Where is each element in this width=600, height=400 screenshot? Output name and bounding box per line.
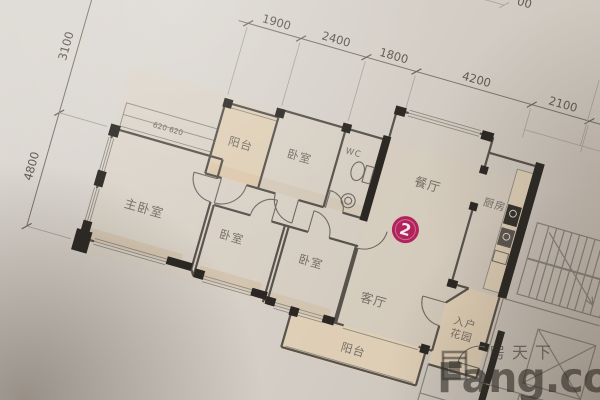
dim-partial-top: 00 <box>516 0 534 11</box>
watermark-en: Fang.com <box>437 354 600 400</box>
dim-left-2: 4800 <box>21 150 43 182</box>
floorplan-photo: 1900 2400 1800 4200 2100 3100 4800 00 62… <box>0 0 600 400</box>
dim-left-1: 3100 <box>55 30 77 62</box>
watermark: 房天下 Fang.com <box>437 343 600 400</box>
dim-top-1: 1900 <box>261 11 293 33</box>
dim-top-5: 2100 <box>547 93 579 115</box>
dim-top-4: 4200 <box>461 69 493 91</box>
dim-top-3: 1800 <box>378 45 410 67</box>
dim-top-2: 2400 <box>320 28 352 50</box>
floorplan-svg: 1900 2400 1800 4200 2100 3100 4800 00 62… <box>0 0 600 400</box>
plan-rotated-group: 1900 2400 1800 4200 2100 3100 4800 00 62… <box>0 0 600 400</box>
room-fills <box>68 36 547 400</box>
staircase <box>517 223 600 318</box>
